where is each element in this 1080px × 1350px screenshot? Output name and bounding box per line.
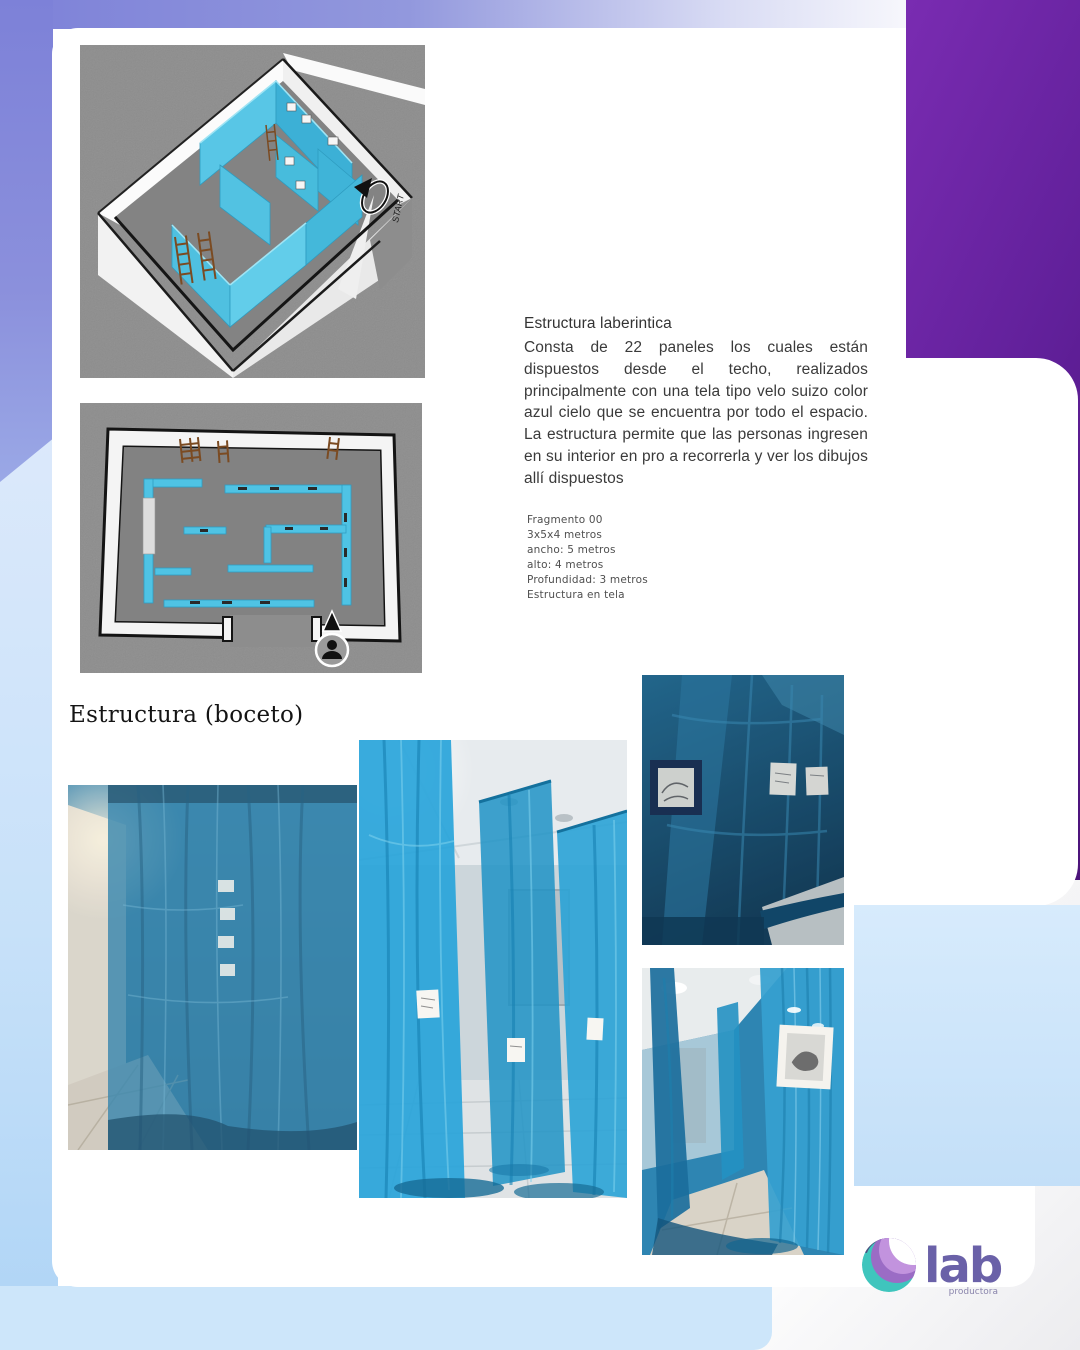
background-periwinkle-left [0,0,53,482]
spec-line: Fragmento 00 [527,513,687,528]
photo-installation-4 [642,968,844,1255]
spec-line: 3x5x4 metros [527,528,687,543]
spec-line: Estructura en tela [527,588,687,603]
background-right-blue-block [854,905,1080,1186]
photo-installation-1 [68,785,357,1150]
sketch-heading: Estructura (boceto) [69,702,303,728]
section-description: Consta de 22 paneles los cuales están di… [524,337,868,490]
fragment-specs: Fragmento 00 3x5x4 metros ancho: 5 metro… [527,513,687,604]
background-periwinkle-top [0,0,908,29]
photo-installation-2 [359,740,627,1198]
spec-line: alto: 4 metros [527,558,687,573]
lab-logo-tagline: productora [949,1287,998,1297]
lab-logo-text: lab [924,1238,1002,1294]
portfolio-page: START [0,0,1080,1350]
render-3d-topdown [80,403,422,673]
lab-logo: lab productora [856,1232,1026,1302]
render-3d-perspective: START [80,45,425,378]
card-right-tab [906,358,1078,906]
photo-installation-3 [642,675,844,945]
spec-line: Profundidad: 3 metros [527,573,687,588]
section-title: Estructura laberintica [524,315,870,333]
spec-line: ancho: 5 metros [527,543,687,558]
background-left-blue-strip [0,420,58,1350]
background-bottom-blue-band [0,1286,772,1350]
